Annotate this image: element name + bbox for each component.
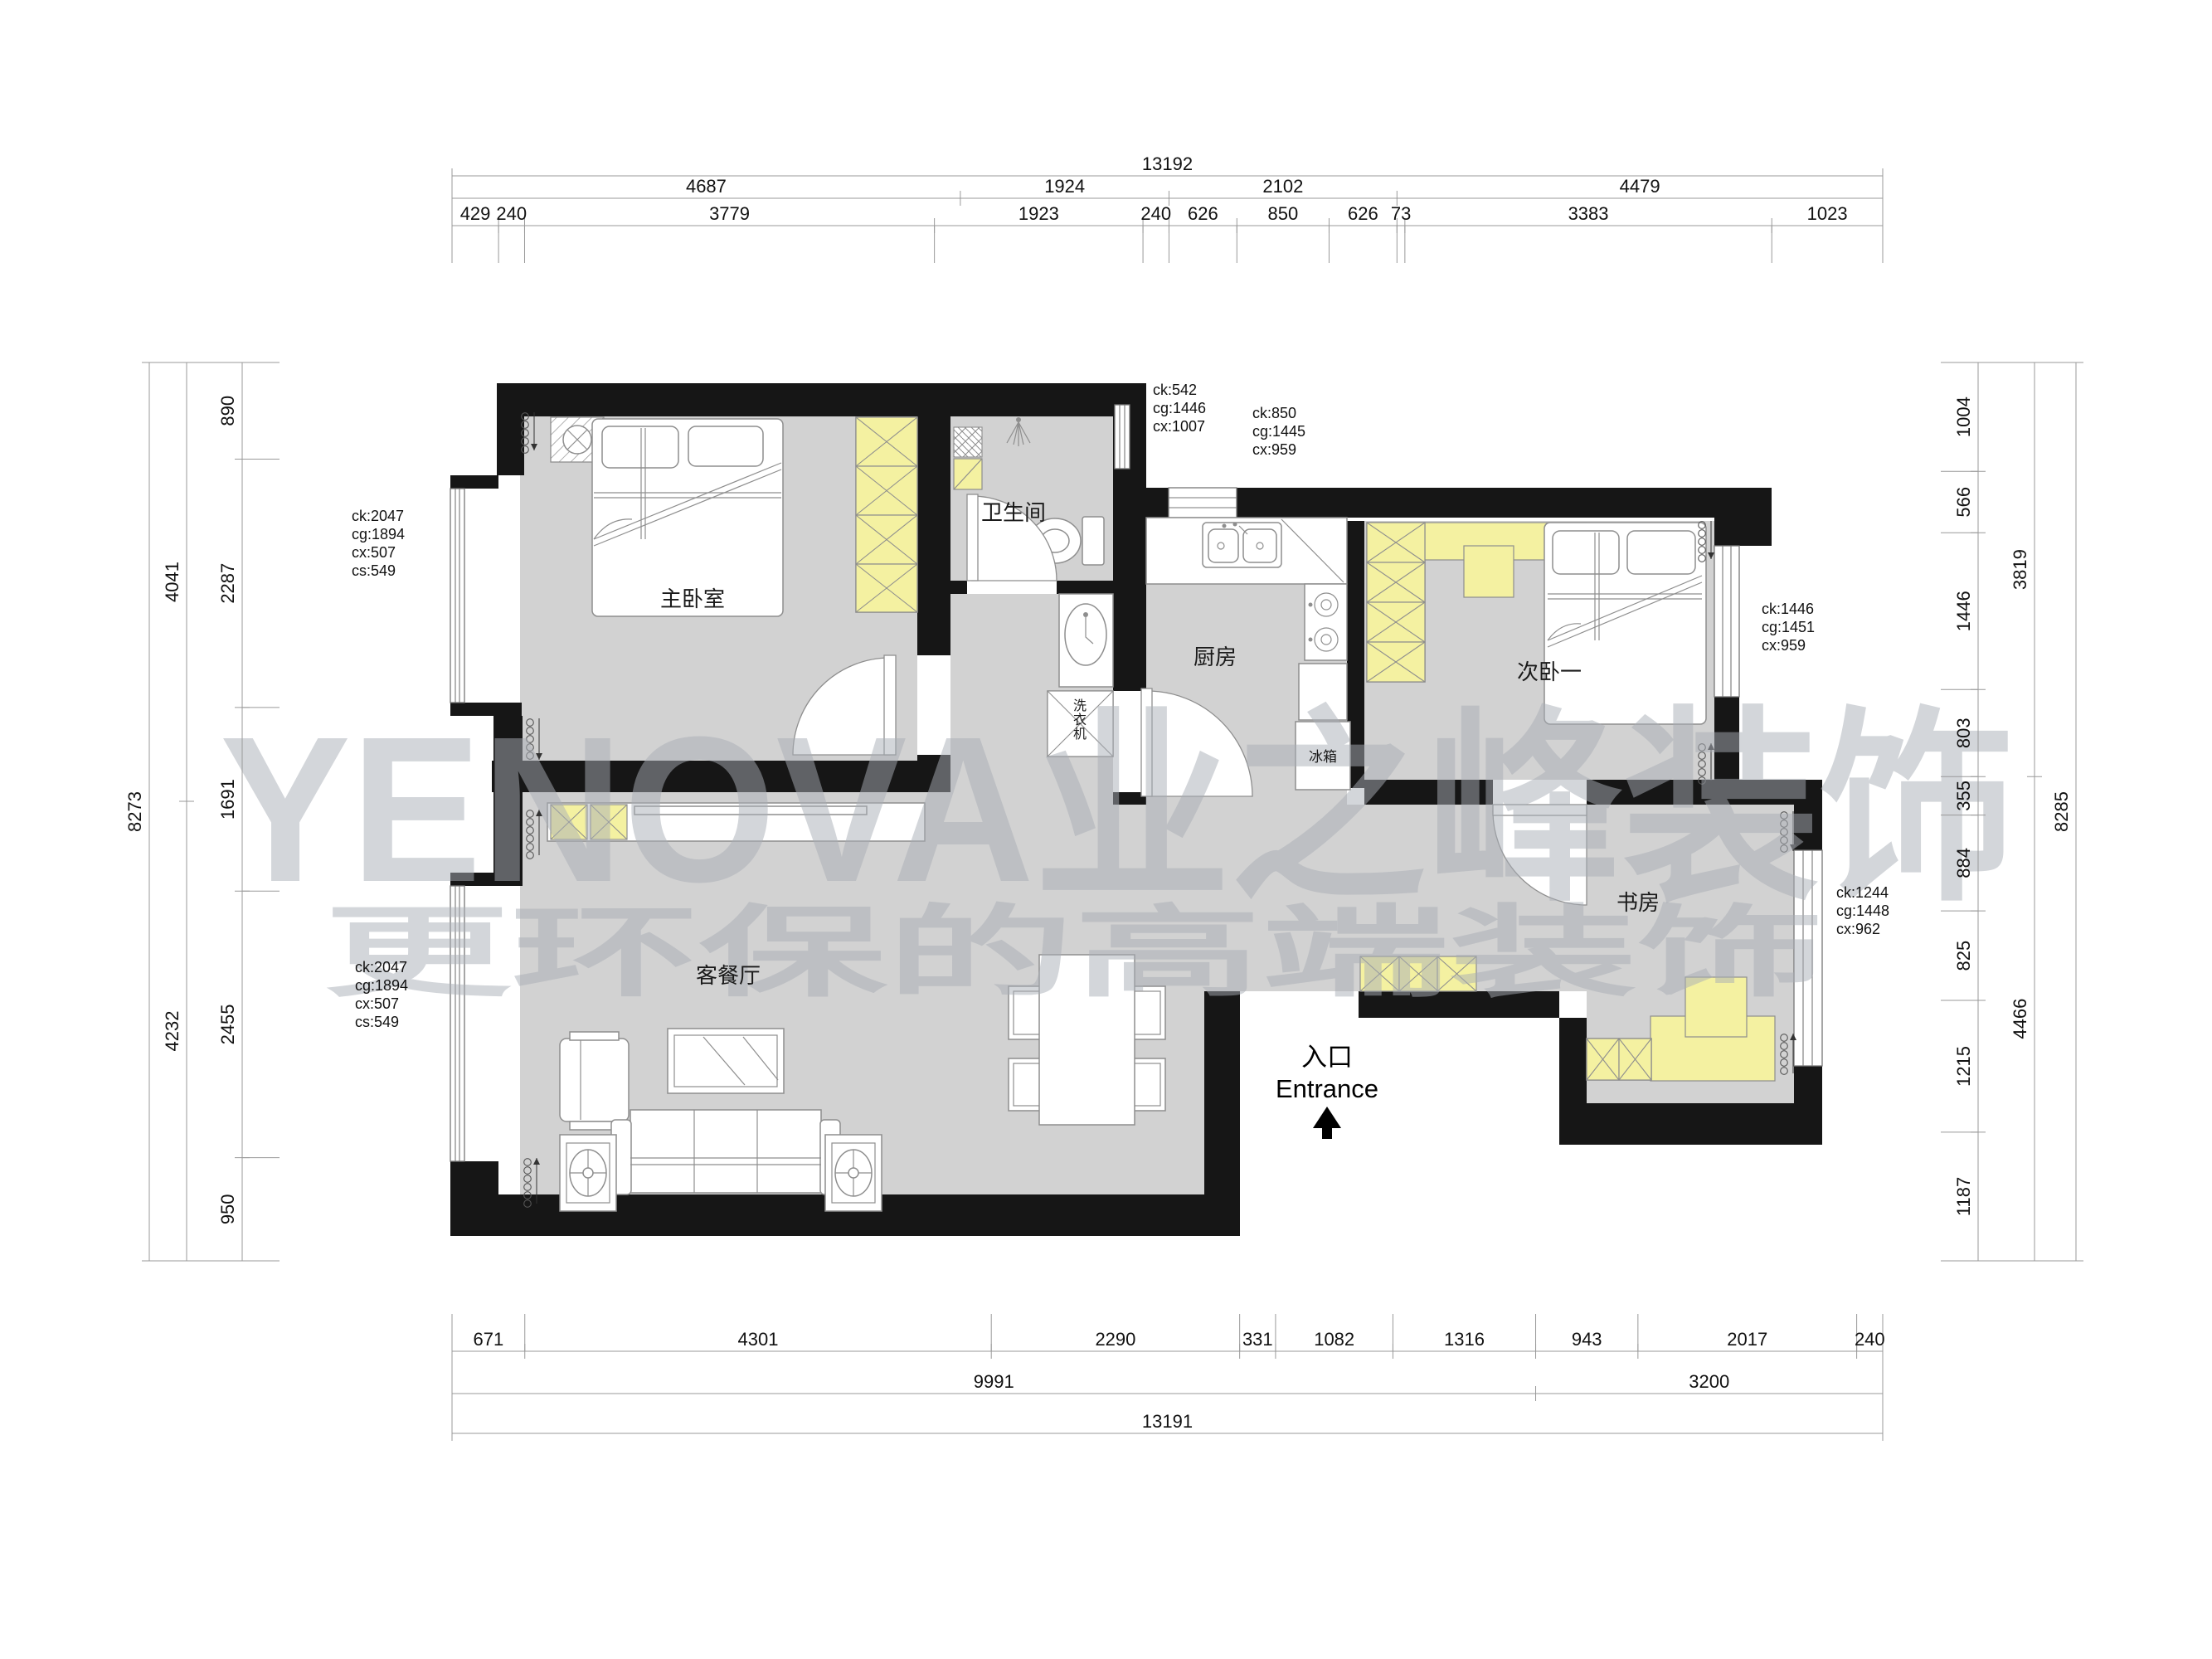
- stove-icon: [1305, 584, 1347, 660]
- watermark-slogan: 更环保的高端装饰: [323, 898, 1825, 1009]
- svg-text:1187: 1187: [1953, 1177, 1974, 1216]
- kitchen-sink-icon: [1203, 523, 1281, 568]
- svg-text:671: 671: [474, 1329, 504, 1350]
- svg-text:3819: 3819: [2010, 549, 2030, 590]
- svg-text:1924: 1924: [1044, 176, 1085, 197]
- svg-text:240: 240: [496, 203, 527, 224]
- svg-text:3779: 3779: [709, 203, 750, 224]
- svg-text:8285: 8285: [2051, 791, 2072, 832]
- window-kitchen-top: [1169, 488, 1237, 518]
- svg-text:cg:1448: cg:1448: [1836, 902, 1889, 919]
- window-second-bedroom-right: [1714, 546, 1739, 697]
- svg-text:4466: 4466: [2010, 999, 2030, 1039]
- svg-text:cx:507: cx:507: [352, 544, 396, 561]
- svg-text:1004: 1004: [1953, 397, 1974, 437]
- svg-text:cg:1445: cg:1445: [1252, 423, 1305, 440]
- svg-text:2287: 2287: [217, 563, 238, 604]
- svg-text:4232: 4232: [162, 1011, 182, 1052]
- svg-text:825: 825: [1953, 941, 1974, 971]
- watermark: YENOVA业之峰装饰 更环保的高端装饰: [220, 693, 2015, 1009]
- floor-plan-canvas: 洗衣机 YENOVA业之峰装饰 更环保的高端装饰 主卧室 卫生间 厨房 次卧一 …: [0, 0, 2212, 1659]
- label-second-bedroom: 次卧一: [1517, 659, 1582, 684]
- svg-text:4687: 4687: [686, 176, 727, 197]
- window-bathroom-side: [1115, 405, 1130, 469]
- svg-text:1923: 1923: [1018, 203, 1059, 224]
- label-fridge: 冰箱: [1309, 749, 1337, 765]
- svg-text:566: 566: [1953, 487, 1974, 518]
- svg-text:cs:549: cs:549: [352, 562, 396, 579]
- label-bathroom: 卫生间: [981, 500, 1046, 525]
- svg-text:4041: 4041: [162, 562, 182, 602]
- svg-text:1691: 1691: [217, 779, 238, 820]
- svg-text:4301: 4301: [737, 1329, 778, 1350]
- svg-text:626: 626: [1188, 203, 1218, 224]
- entrance-label-cn: 入口: [1301, 1043, 1353, 1072]
- svg-text:cg:1894: cg:1894: [352, 526, 405, 542]
- annotation-second_bedroom_right: ck:1446cg:1451cx:959: [1762, 601, 1815, 654]
- svg-text:943: 943: [1572, 1329, 1602, 1350]
- svg-text:890: 890: [217, 396, 238, 426]
- svg-text:850: 850: [1268, 203, 1299, 224]
- label-living-dining: 客餐厅: [696, 963, 761, 988]
- svg-text:cg:1451: cg:1451: [1762, 619, 1815, 635]
- svg-text:240: 240: [1140, 203, 1171, 224]
- svg-text:429: 429: [460, 203, 491, 224]
- svg-text:884: 884: [1953, 848, 1974, 878]
- svg-text:2102: 2102: [1262, 176, 1303, 197]
- svg-text:331: 331: [1242, 1329, 1273, 1350]
- svg-text:1215: 1215: [1953, 1046, 1974, 1087]
- svg-text:13191: 13191: [1142, 1411, 1193, 1432]
- svg-text:ck:1244: ck:1244: [1836, 884, 1889, 901]
- svg-text:8273: 8273: [124, 791, 145, 832]
- label-study: 书房: [1616, 890, 1660, 915]
- annotation-kitchen_top: ck:850cg:1445cx:959: [1252, 405, 1305, 458]
- annotation-bath_top: ck:542cg:1446cx:1007: [1153, 382, 1206, 435]
- svg-text:ck:850: ck:850: [1252, 405, 1296, 421]
- window-master-left: [450, 489, 464, 703]
- svg-text:cg:1894: cg:1894: [355, 977, 408, 994]
- svg-text:950: 950: [217, 1194, 238, 1224]
- svg-text:3383: 3383: [1568, 203, 1609, 224]
- bedroom2-chair: [1464, 546, 1514, 597]
- svg-text:4479: 4479: [1620, 176, 1660, 197]
- svg-text:2017: 2017: [1727, 1329, 1767, 1350]
- svg-text:cx:962: cx:962: [1836, 921, 1880, 937]
- svg-text:73: 73: [1391, 203, 1411, 224]
- svg-text:1082: 1082: [1314, 1329, 1354, 1350]
- annotation-master_left: ck:2047cg:1894cx:507cs:549: [352, 508, 405, 579]
- svg-text:cx:959: cx:959: [1252, 441, 1296, 458]
- bath-cabinet-icon: [954, 459, 982, 489]
- basin-icon: [1059, 594, 1113, 687]
- watermark-brand: YENOVA业之峰装饰: [220, 693, 2015, 925]
- svg-text:1446: 1446: [1953, 591, 1974, 631]
- annotation-study_right: ck:1244cg:1448cx:962: [1836, 884, 1889, 937]
- svg-text:ck:1446: ck:1446: [1762, 601, 1814, 617]
- svg-text:9991: 9991: [974, 1371, 1014, 1392]
- svg-text:ck:2047: ck:2047: [355, 959, 407, 975]
- svg-text:355: 355: [1953, 781, 1974, 811]
- svg-text:2290: 2290: [1095, 1329, 1135, 1350]
- svg-text:cx:959: cx:959: [1762, 637, 1806, 654]
- svg-text:3200: 3200: [1689, 1371, 1729, 1392]
- plant-stand-left-icon: [560, 1135, 616, 1211]
- coffee-table-icon: [668, 1029, 784, 1093]
- svg-text:1023: 1023: [1807, 203, 1848, 224]
- svg-text:cs:549: cs:549: [355, 1014, 399, 1030]
- entrance-marker: 入口 Entrance: [1276, 1043, 1378, 1139]
- svg-text:cg:1446: cg:1446: [1153, 400, 1206, 416]
- svg-text:240: 240: [1855, 1329, 1885, 1350]
- svg-text:ck:542: ck:542: [1153, 382, 1197, 398]
- svg-text:2455: 2455: [217, 1004, 238, 1044]
- armchair-icon: [560, 1032, 629, 1130]
- svg-text:1316: 1316: [1444, 1329, 1485, 1350]
- svg-text:ck:2047: ck:2047: [352, 508, 404, 524]
- entrance-label-en: Entrance: [1276, 1074, 1378, 1103]
- sofa-icon: [611, 1110, 840, 1194]
- svg-text:803: 803: [1953, 718, 1974, 748]
- label-master-bedroom: 主卧室: [660, 586, 725, 611]
- floor-plan-svg: 洗衣机 YENOVA业之峰装饰 更环保的高端装饰 主卧室 卫生间 厨房 次卧一 …: [0, 0, 2212, 1659]
- entrance-arrow-icon: [1313, 1107, 1341, 1139]
- svg-text:cx:1007: cx:1007: [1153, 418, 1205, 435]
- svg-text:626: 626: [1348, 203, 1378, 224]
- svg-text:cx:507: cx:507: [355, 995, 399, 1012]
- svg-text:13192: 13192: [1142, 153, 1193, 174]
- label-kitchen: 厨房: [1194, 645, 1237, 669]
- bath-shelf-icon: [954, 427, 982, 457]
- plant-stand-right-icon: [825, 1135, 882, 1211]
